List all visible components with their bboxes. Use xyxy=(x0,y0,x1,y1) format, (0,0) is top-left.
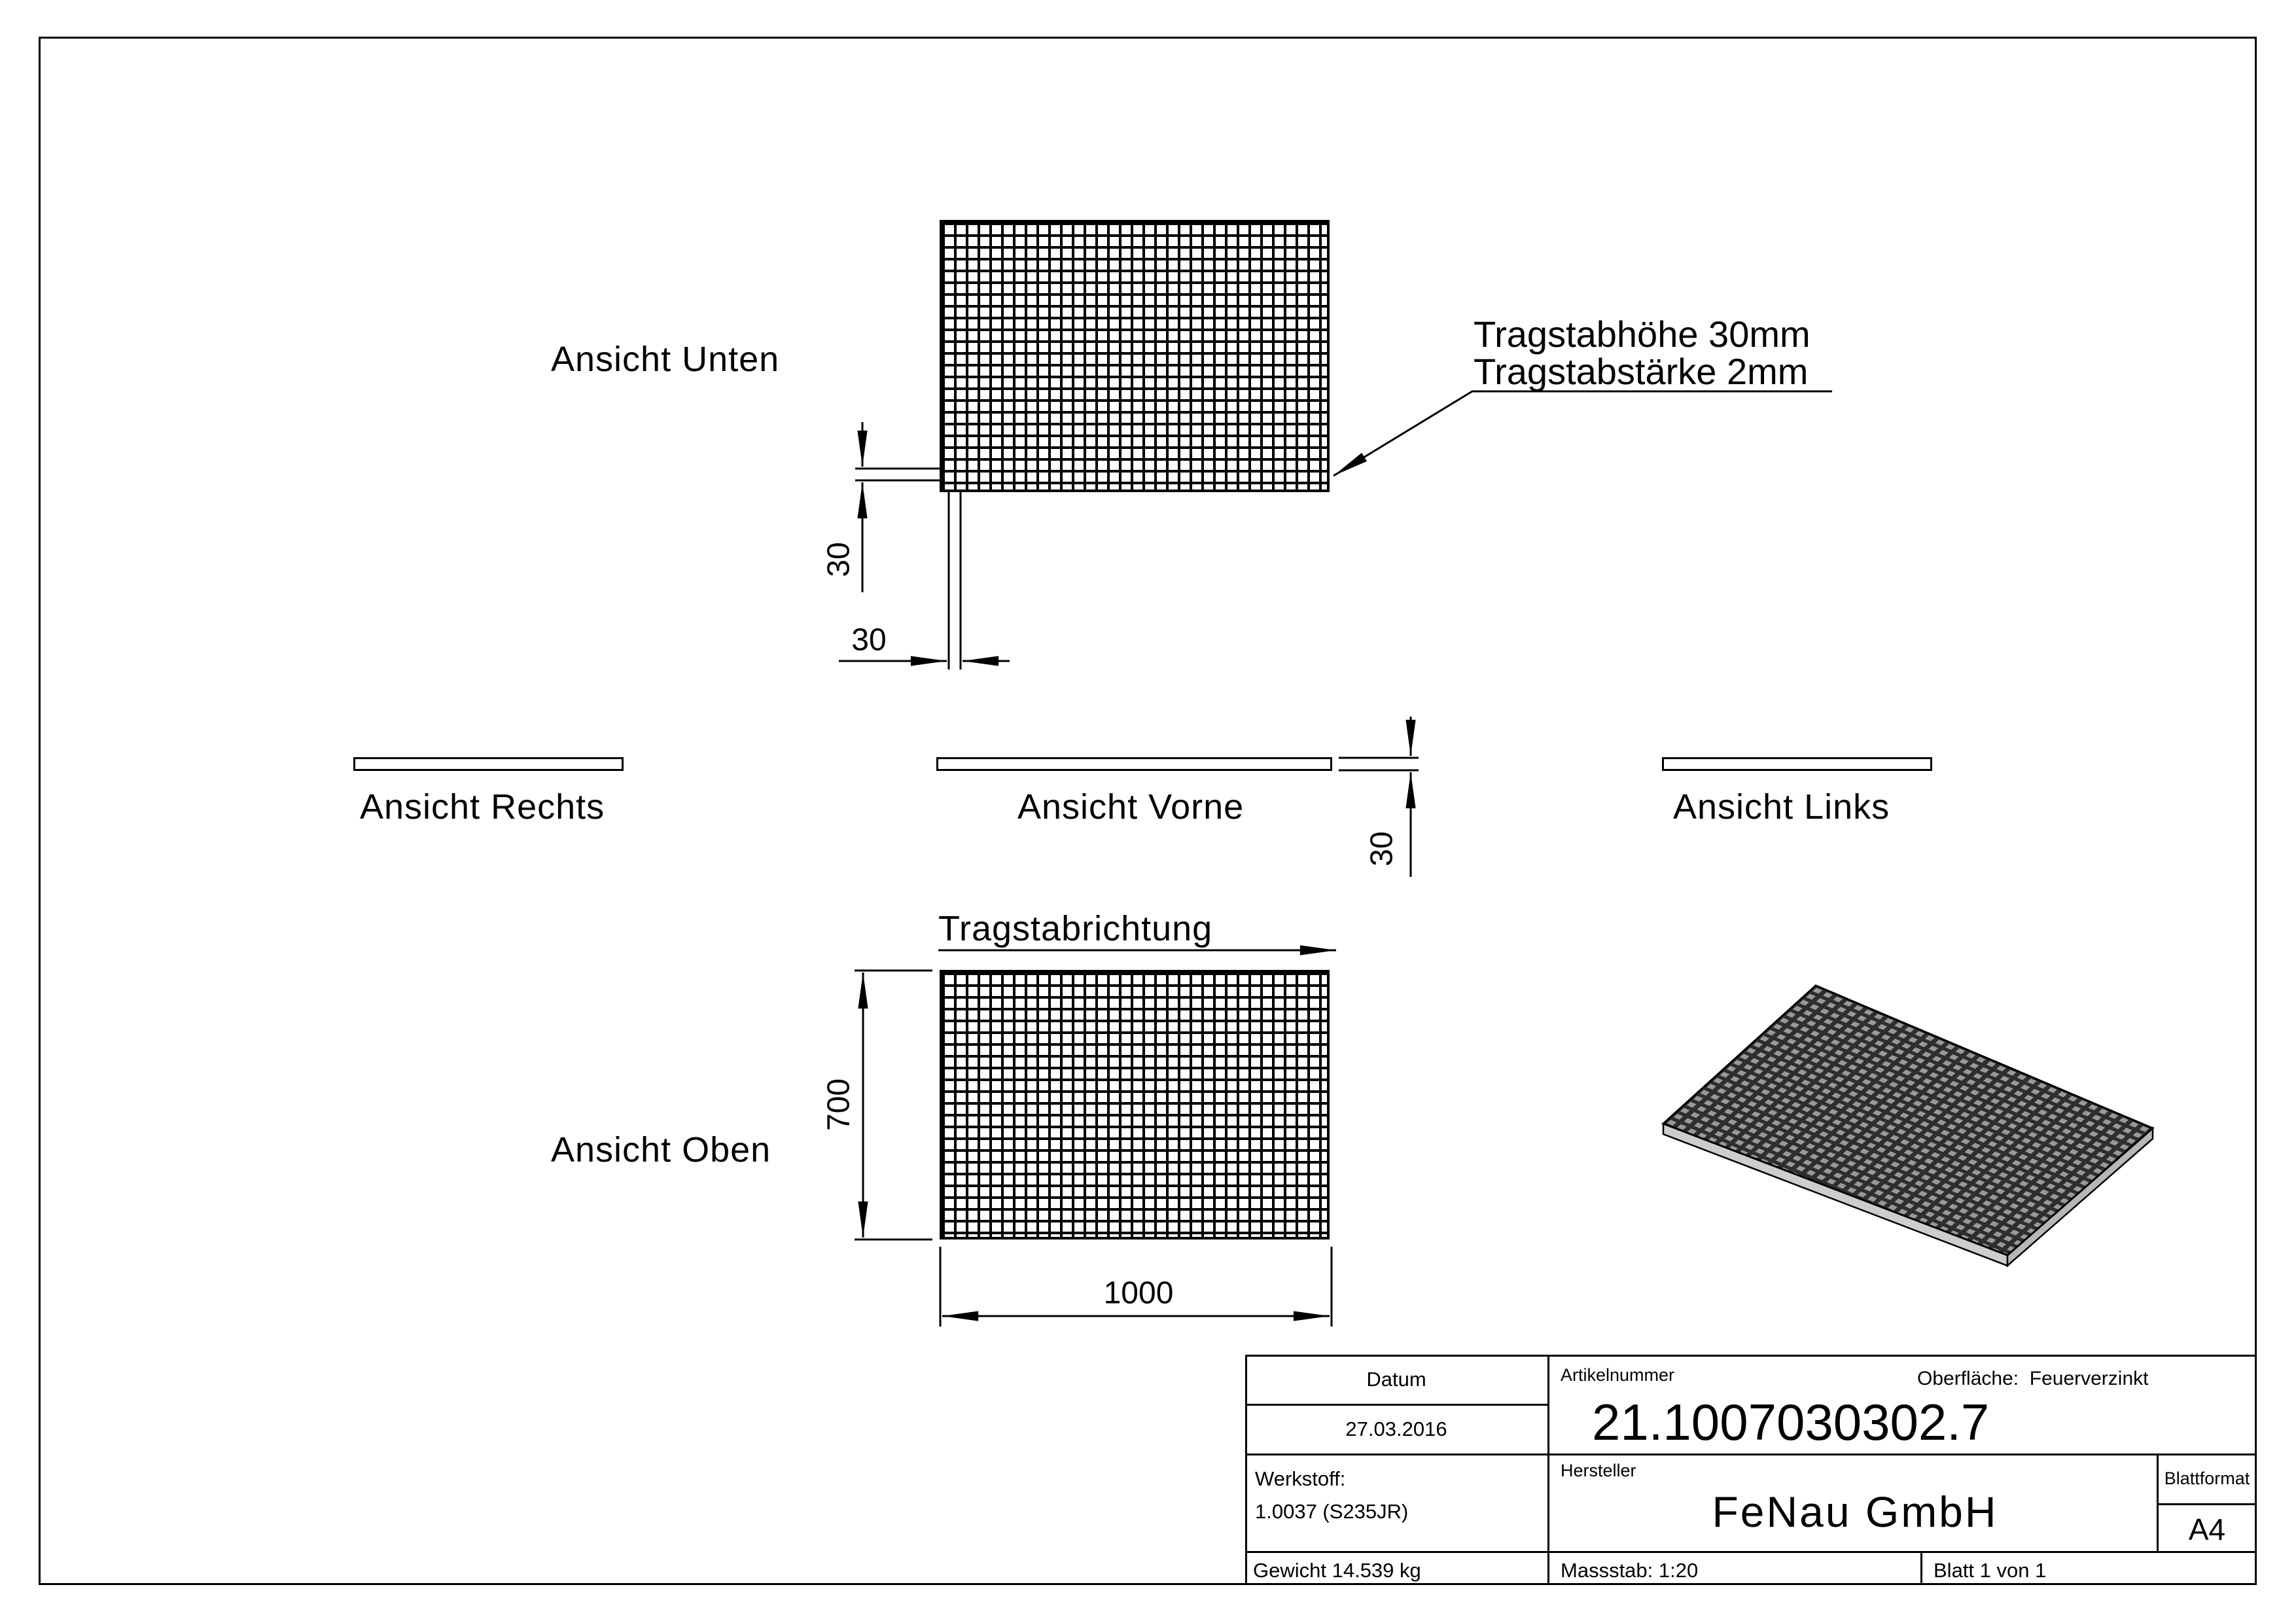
tb-datum-value: 27.03.2016 xyxy=(1345,1418,1447,1441)
tb-line xyxy=(2157,1503,2257,1505)
iso-top-face xyxy=(1663,986,2153,1255)
dim-grating-height: 30 xyxy=(1364,831,1400,866)
tb-hersteller-value: FeNau GmbH xyxy=(1712,1487,1998,1537)
drawing-sheet: Ansicht Unten Tragstabhöhe 30mm Tragstab… xyxy=(0,0,2296,1623)
annotation-text: Tragstabhöhe 30mm Tragstabstärke 2mm xyxy=(1474,315,1810,390)
tb-werkstoff-value: 1.0037 (S235JR) xyxy=(1255,1500,1408,1524)
view-oben-label: Ansicht Oben xyxy=(551,1130,771,1170)
view-links-bar xyxy=(1662,757,1932,771)
tb-oberflaeche: Oberfläche: Feuerverzinkt xyxy=(1917,1368,2148,1390)
view-links-label: Ansicht Links xyxy=(1673,787,1890,827)
dim-depth-700: 700 xyxy=(821,1079,857,1131)
annotation-line2: Tragstabstärke 2mm xyxy=(1474,353,1810,390)
tb-datum-label: Datum xyxy=(1366,1368,1426,1391)
isometric-view xyxy=(1663,986,2153,1266)
tb-artikelnummer-label: Artikelnummer xyxy=(1561,1365,1674,1385)
tb-werkstoff-label: Werkstoff: xyxy=(1255,1467,1345,1491)
view-unten-label: Ansicht Unten xyxy=(551,339,779,380)
tb-blattformat-label: Blattformat xyxy=(2164,1469,2250,1489)
tb-line xyxy=(1245,1404,1547,1406)
view-oben-grid xyxy=(940,970,1330,1240)
annotation-leader-line xyxy=(1333,391,1832,476)
tb-blatt: Blatt 1 von 1 xyxy=(1934,1559,2046,1582)
annotation-line1: Tragstabhöhe 30mm xyxy=(1474,315,1810,353)
tb-line xyxy=(1547,1355,1549,1585)
tb-line xyxy=(2157,1454,2159,1551)
tb-line xyxy=(1245,1551,2257,1553)
view-vorne-label: Ansicht Vorne xyxy=(1017,787,1244,827)
direction-label: Tragstabrichtung xyxy=(938,908,1212,949)
view-rechts-label: Ansicht Rechts xyxy=(360,787,605,827)
dim-width-1000: 1000 xyxy=(1104,1275,1174,1311)
tb-blattformat-value: A4 xyxy=(2189,1512,2225,1547)
tb-artikelnummer-value: 21.1007030302.7 xyxy=(1592,1393,1989,1452)
tb-line xyxy=(1920,1551,1922,1585)
tb-gewicht: Gewicht 14.539 kg xyxy=(1253,1559,1421,1582)
tb-line xyxy=(1245,1454,2257,1455)
view-vorne-bar xyxy=(936,757,1332,771)
dim-mesh-pitch-horizontal: 30 xyxy=(851,622,886,658)
dim-mesh-pitch-vertical: 30 xyxy=(821,542,857,577)
view-rechts-bar xyxy=(353,757,624,771)
tb-massstab: Massstab: 1:20 xyxy=(1561,1559,1698,1582)
tb-hersteller-label: Hersteller xyxy=(1561,1461,1636,1481)
view-unten-grid xyxy=(940,220,1330,492)
